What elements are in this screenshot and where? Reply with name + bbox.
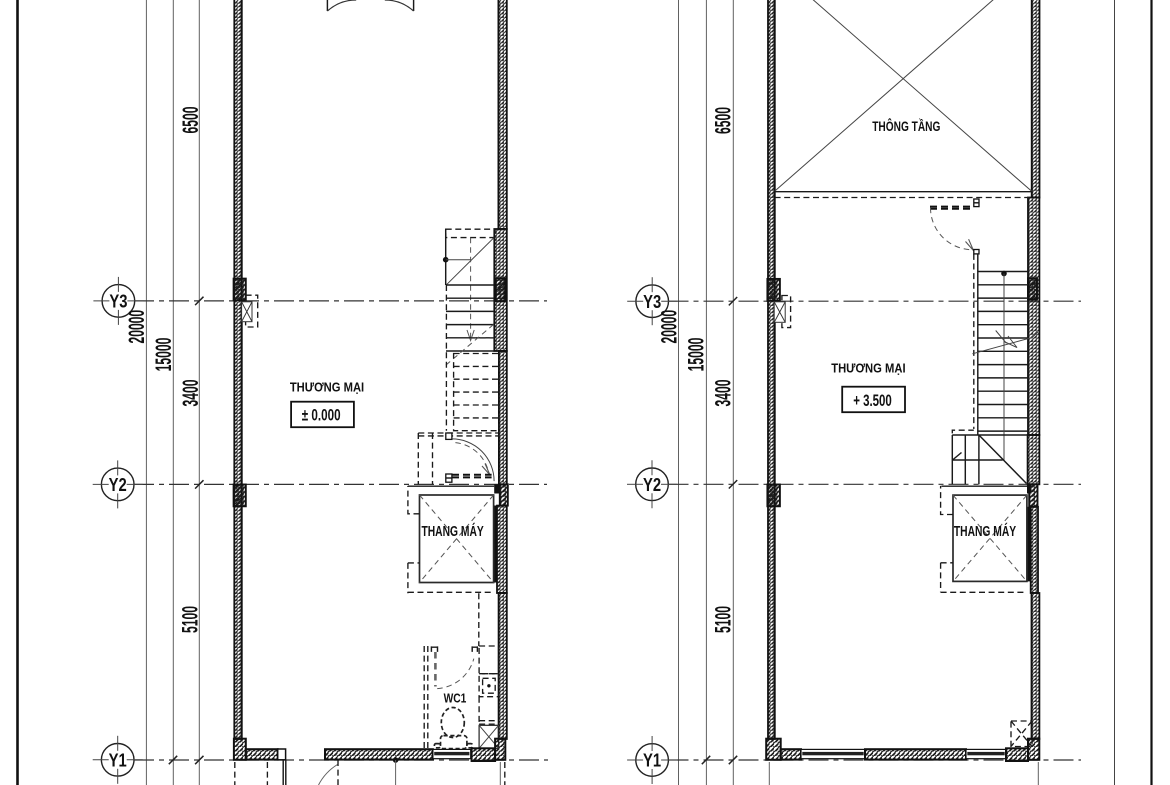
svg-text:6500: 6500 xyxy=(711,107,736,134)
svg-text:5100: 5100 xyxy=(178,606,203,633)
svg-text:20000: 20000 xyxy=(657,310,682,344)
svg-text:WC1: WC1 xyxy=(444,692,467,705)
svg-text:± 0.000: ± 0.000 xyxy=(302,405,341,423)
svg-text:Y1: Y1 xyxy=(109,750,127,771)
svg-text:5100: 5100 xyxy=(711,606,736,633)
svg-text:Y2: Y2 xyxy=(109,474,127,495)
svg-text:THƯƠNG MẠI: THƯƠNG MẠI xyxy=(290,380,364,395)
svg-text:THANG MÁY: THANG MÁY xyxy=(954,522,1017,539)
svg-text:15000: 15000 xyxy=(684,338,709,372)
svg-text:Y1: Y1 xyxy=(643,750,661,771)
svg-text:THƯƠNG MẠI: THƯƠNG MẠI xyxy=(831,361,905,376)
svg-text:Y3: Y3 xyxy=(643,291,661,312)
svg-text:3400: 3400 xyxy=(178,379,203,406)
svg-text:3400: 3400 xyxy=(711,379,736,406)
svg-text:20000: 20000 xyxy=(124,310,149,344)
svg-text:Y3: Y3 xyxy=(109,291,127,312)
svg-text:Y2: Y2 xyxy=(643,474,661,495)
svg-text:6500: 6500 xyxy=(178,106,203,133)
svg-text:THANG MÁY: THANG MÁY xyxy=(421,522,484,539)
svg-text:THÔNG TẦNG: THÔNG TẦNG xyxy=(872,117,940,134)
svg-text:+ 3.500: + 3.500 xyxy=(853,392,892,411)
svg-text:15000: 15000 xyxy=(151,338,176,372)
